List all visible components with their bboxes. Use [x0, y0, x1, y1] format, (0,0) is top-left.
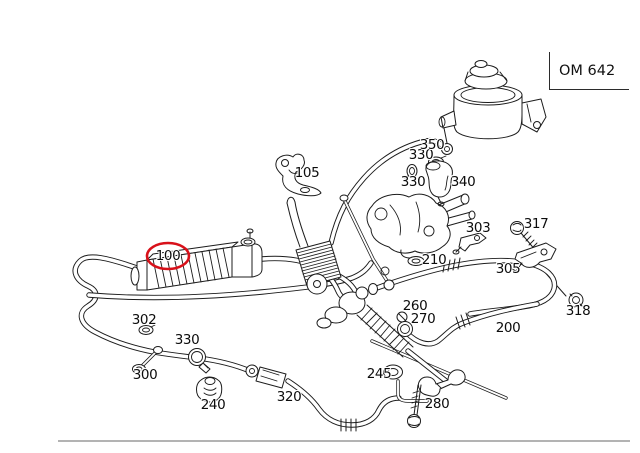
part-label-100: 100 — [156, 248, 181, 264]
cooler-100-drawing — [131, 229, 262, 290]
part-label-350: 350 — [420, 137, 445, 153]
part-label-240: 240 — [201, 397, 226, 413]
parts-diagram-page: { "colors": { "line": "#1c1c1c", "highli… — [0, 0, 640, 453]
part-label-200: 200 — [496, 320, 521, 336]
coil-riser-hoses-drawing — [287, 197, 308, 247]
hose-320-drawing — [288, 381, 399, 425]
part-label-305: 305 — [496, 261, 521, 277]
reservoir-drawing — [439, 61, 546, 139]
clevis-drawing — [418, 370, 465, 396]
part-label-320: 320 — [277, 389, 302, 405]
part-label-302: 302 — [132, 312, 157, 328]
part-label-317: 317 — [524, 216, 549, 232]
part-label-280: 280 — [425, 396, 450, 412]
part-label-105: 105 — [295, 165, 320, 181]
part-label-318: 318 — [566, 303, 591, 319]
engine-code-box: OM 642 — [549, 52, 629, 90]
bottom-rule — [58, 440, 630, 442]
ribbed-fittings-drawing — [341, 258, 470, 431]
part-label-210: 210 — [422, 252, 447, 268]
bracket-303-drawing — [453, 233, 486, 254]
part-label-303: 303 — [466, 220, 491, 236]
banjo-fitting-drawing — [369, 284, 378, 295]
part-label-330-b: 330 — [401, 174, 426, 190]
bolt-280-drawing — [408, 385, 422, 428]
part-label-340: 340 — [451, 174, 476, 190]
part-label-245: 245 — [367, 366, 392, 382]
engine-code-label: OM 642 — [559, 63, 615, 79]
part-label-300: 300 — [133, 367, 158, 383]
part-label-270: 270 — [411, 311, 436, 327]
pulley-drawing — [307, 274, 327, 294]
rack-housing-drawing — [317, 287, 368, 328]
part-label-330-c: 330 — [175, 332, 200, 348]
eyelet-320-drawing — [246, 365, 286, 388]
